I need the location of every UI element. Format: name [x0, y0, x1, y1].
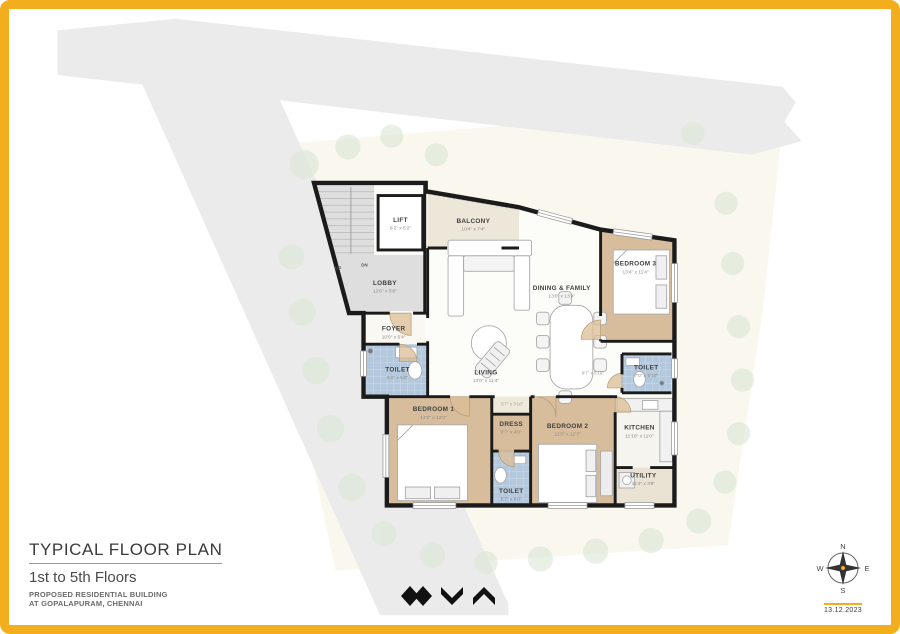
utility-dims: 11'4" x 3'8" — [632, 481, 656, 487]
compass-icon: N S W E — [811, 542, 875, 594]
kitchen-label: KITCHEN — [624, 425, 655, 432]
compass-e: E — [864, 564, 869, 573]
bedroom1-dims: 14'2" x 12'0" — [420, 415, 447, 421]
plan-title: TYPICAL FLOOR PLAN — [29, 540, 222, 564]
lift-label: LIFT — [393, 217, 408, 224]
balcony-label: BALCONY — [456, 218, 490, 225]
kitchen-dims: 11'10" x 11'0" — [625, 433, 654, 439]
site-plan-canvas: LIFT 6'2" x 5'2" BALCONY 10'4" x 7'4" LO… — [9, 9, 891, 625]
toilet-left-label: TOILET — [385, 366, 409, 373]
builder-logo — [395, 584, 505, 613]
bedroom2-label: BEDROOM 2 — [547, 423, 589, 430]
stairs-dn-label: DN — [361, 262, 367, 267]
compass-n: N — [840, 542, 845, 551]
stairs-up-label: UP — [335, 265, 341, 270]
project-line1: PROPOSED RESIDENTIAL BUILDING — [29, 590, 222, 600]
toilet-bottom-dims: 5'7" x 8'0" — [501, 497, 522, 503]
passage-dim-b: 8'7" x 5'10" — [582, 370, 604, 375]
toilet-right-label: TOILET — [634, 364, 658, 371]
passage-dim-a: 5'7" x 3'10" — [501, 401, 523, 406]
foyer-dims: 10'0" x 5'4" — [382, 334, 406, 340]
floor-plan-sheet: LIFT 6'2" x 5'2" BALCONY 10'4" x 7'4" LO… — [0, 0, 900, 634]
logo-chevrons-icon — [395, 584, 505, 608]
plan-subtitle: 1st to 5th Floors — [29, 569, 222, 586]
bedroom1-label: BEDROOM 1 — [413, 406, 455, 413]
dining-dims: 13'0" x 13'4" — [548, 294, 575, 300]
dining-label: DINING & FAMILY — [533, 285, 591, 292]
compass-w: W — [816, 564, 824, 573]
bed-bedroom2 — [538, 444, 612, 502]
bedroom2-dims: 11'0" x 12'7" — [554, 432, 580, 438]
balcony-dims: 10'4" x 7'4" — [461, 227, 485, 233]
lobby-dims: 12'6" x 5'6" — [373, 289, 397, 295]
lift-dims: 6'2" x 5'2" — [390, 226, 411, 232]
dress-dims: 5'7" x 4'0" — [501, 430, 522, 436]
toilet-right-dims: 7'0" x 5'10" — [634, 373, 658, 379]
toilet-left-dims: 9'2" x 5'0" — [387, 375, 408, 381]
toilet-bottom-label: TOILET — [499, 488, 523, 495]
dress-label: DRESS — [499, 421, 523, 428]
bedroom3-dims: 13'4" x 11'4" — [622, 269, 648, 275]
lobby-label: LOBBY — [373, 280, 397, 287]
living-label: LIVING — [474, 369, 497, 376]
compass-s: S — [840, 586, 845, 594]
title-block: TYPICAL FLOOR PLAN 1st to 5th Floors PRO… — [29, 540, 222, 610]
utility-label: UTILITY — [630, 472, 657, 479]
bedroom3-label: BEDROOM 3 — [615, 261, 657, 268]
plan-date: 13.12.2023 — [824, 603, 862, 614]
project-line2: AT GOPALAPURAM, CHENNAI — [29, 599, 222, 609]
living-dims: 13'0" x 11'4" — [473, 378, 499, 384]
bed-bedroom1 — [398, 425, 468, 501]
compass-block: N S W E 13.12.2023 — [811, 542, 875, 617]
foyer-label: FOYER — [382, 326, 406, 333]
